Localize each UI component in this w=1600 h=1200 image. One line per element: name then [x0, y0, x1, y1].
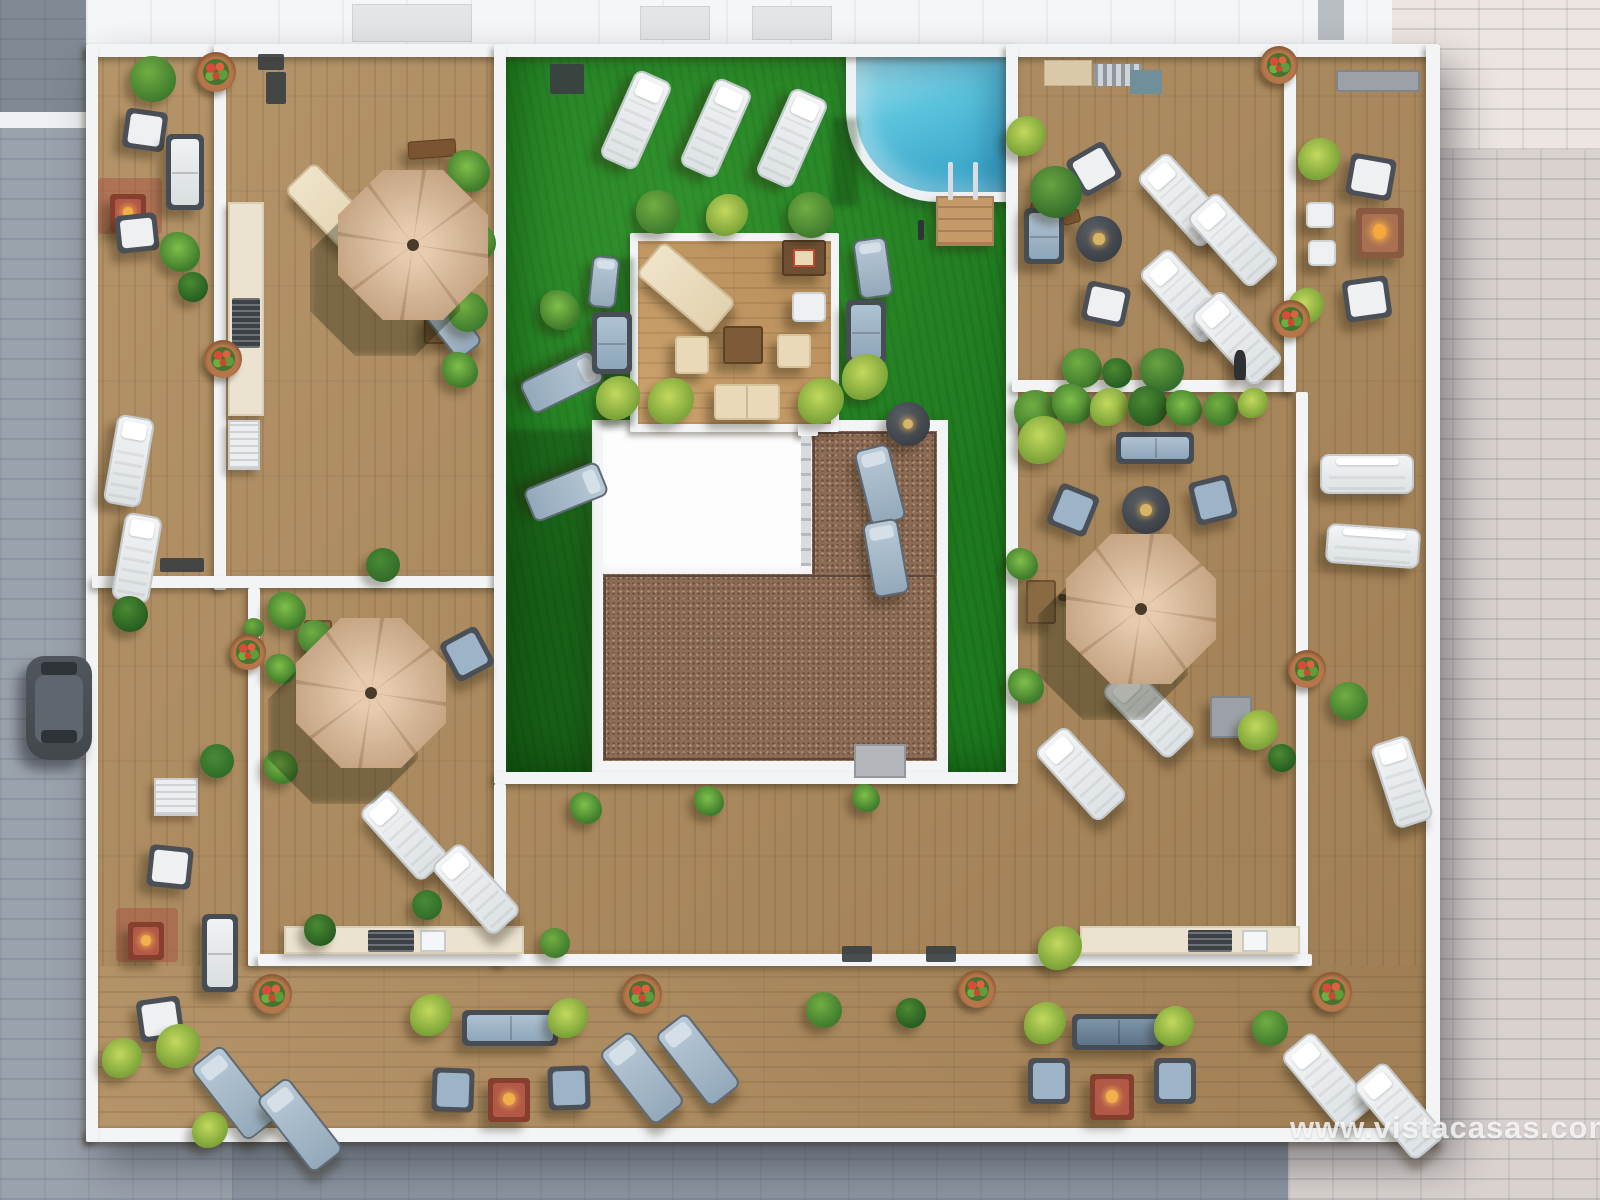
door-mat [550, 64, 584, 94]
perimeter-wall-left [86, 44, 98, 1142]
roof-access-ladder [801, 436, 811, 566]
flower-pot [1312, 972, 1352, 1012]
flower-pot [622, 974, 662, 1014]
sofa-white-v [166, 134, 204, 210]
neighbor-wall-edge [0, 112, 92, 128]
patio-door [752, 6, 832, 40]
plant [412, 890, 442, 920]
table-round-dark [1076, 216, 1122, 262]
pool-shower [918, 220, 924, 240]
parasol [296, 618, 446, 768]
divider-wall [258, 954, 1312, 966]
plant [1030, 166, 1082, 218]
sofa-blue-h [462, 1010, 558, 1046]
plant [852, 784, 880, 812]
armchair-blue [431, 1067, 475, 1112]
ottoman-white [1308, 240, 1336, 266]
kitchen-sink [1242, 930, 1268, 952]
flower-pot [252, 974, 292, 1014]
armchair-blue [1028, 1058, 1070, 1104]
rooftop-terrace-aerial-render: www.vistacasas.com [0, 0, 1600, 1200]
door-mat [160, 558, 204, 572]
flower-pot [230, 634, 266, 670]
lawn-wall-bottom [494, 772, 1018, 784]
plant [1204, 392, 1238, 426]
bbq-cart [154, 778, 198, 816]
plant [1252, 1010, 1288, 1046]
armchair-white [121, 107, 168, 152]
flower-pot [958, 970, 996, 1008]
armchair-blue [1154, 1058, 1196, 1104]
lounger-white [1325, 523, 1422, 569]
parked-car [26, 656, 92, 760]
ottoman-white [1306, 202, 1334, 228]
bbq-grill [368, 930, 414, 952]
daybed-cream [714, 384, 780, 420]
plant [636, 190, 680, 234]
fire-table-red [1090, 1074, 1134, 1120]
bbq-grill [1188, 930, 1232, 952]
parasol [1066, 534, 1216, 684]
sofa-white-v [202, 914, 238, 992]
lamp-dark [1234, 350, 1246, 380]
fire-table-red [128, 922, 164, 960]
door-mat [926, 946, 956, 962]
armchair-white [114, 212, 160, 254]
bbq-grill [232, 298, 260, 348]
ottoman-white [792, 292, 826, 322]
lawn-wall-left [494, 44, 506, 784]
building-white-roof [603, 431, 812, 574]
divider-wall [214, 44, 226, 590]
plant [178, 272, 208, 302]
plant [1128, 386, 1168, 426]
table-round-dark [1122, 486, 1170, 534]
plant [130, 56, 176, 102]
plant [1102, 358, 1132, 388]
plant [806, 992, 842, 1028]
door-mat [1044, 60, 1092, 86]
pillar-planter [266, 72, 286, 104]
plant [540, 928, 570, 958]
plant [1062, 348, 1102, 388]
plant [788, 192, 834, 238]
building-top-band [86, 0, 1392, 46]
plant [366, 548, 400, 582]
plant [200, 744, 234, 778]
building-gravel-roof [603, 574, 937, 761]
plant [112, 596, 148, 632]
armchair-white [1341, 275, 1392, 323]
glass-panel [1130, 70, 1162, 94]
fire-table-red [488, 1078, 530, 1122]
chair-cream [777, 334, 811, 368]
pavement-dark-corner [0, 0, 96, 120]
plant [1268, 744, 1296, 772]
pavement-bottom-left [0, 1140, 232, 1200]
pillar [1318, 0, 1344, 40]
door-mat [258, 54, 284, 70]
plant [304, 914, 336, 946]
fire-table-brown [1356, 208, 1404, 258]
lounger-white [1320, 454, 1414, 494]
deck-building-link [798, 424, 818, 436]
table-tray [782, 240, 826, 276]
pool-shadow [832, 118, 858, 206]
flower-pot [196, 52, 236, 92]
perimeter-wall-right [1426, 44, 1440, 1142]
divider-wall [92, 576, 502, 588]
plant [570, 792, 602, 824]
plant [694, 786, 724, 816]
flower-pot [1272, 300, 1310, 338]
pavement-bottom-right [1288, 1140, 1600, 1200]
watermark-url: www.vistacasas.com [1290, 1110, 1600, 1146]
plant [1006, 548, 1038, 580]
pool-ladder [946, 162, 980, 200]
flower-pot [1288, 650, 1326, 688]
armchair-white [1345, 152, 1398, 201]
door-mat [842, 946, 872, 962]
pavement-left [0, 0, 92, 1200]
pavement-bottom-center [232, 1140, 1288, 1200]
flower-pot [204, 340, 242, 378]
parasol [338, 170, 488, 320]
sofa-navy-h [1072, 1014, 1164, 1050]
table-sq-brown [723, 326, 763, 364]
kitchen-sink [420, 930, 446, 952]
plant [1330, 682, 1368, 720]
armchair-blue [547, 1065, 591, 1110]
sofa-blue-v [592, 312, 632, 374]
bench-brown [407, 138, 456, 159]
pool-steps [936, 196, 994, 246]
chair-cream [675, 336, 709, 374]
recessed-planter-bench [1336, 70, 1420, 92]
flower-pot [1260, 46, 1298, 84]
patio-door [640, 6, 710, 40]
divider-wall [1284, 44, 1296, 392]
bbq-cart [228, 420, 260, 470]
plant [896, 998, 926, 1028]
table-round-dark [886, 402, 930, 446]
perimeter-wall-top [86, 44, 1440, 57]
roof-vent [854, 744, 906, 778]
patio-door [352, 4, 472, 42]
sofa-blue-h [1116, 432, 1194, 464]
armchair-white [146, 844, 194, 890]
lounger-blue [587, 255, 620, 310]
